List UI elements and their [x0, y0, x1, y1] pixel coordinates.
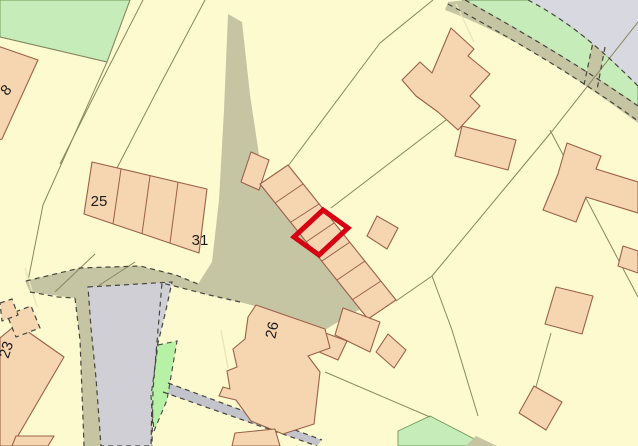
label-terrace-25: 25 — [91, 193, 108, 210]
building-bottom-left — [12, 436, 54, 446]
site-map[interactable]: 8 25 31 26 23 — [0, 0, 638, 446]
map-viewport[interactable]: 8 25 31 26 23 — [0, 0, 638, 446]
label-terrace-31: 31 — [192, 232, 209, 249]
label-house-26: 26 — [262, 320, 282, 340]
